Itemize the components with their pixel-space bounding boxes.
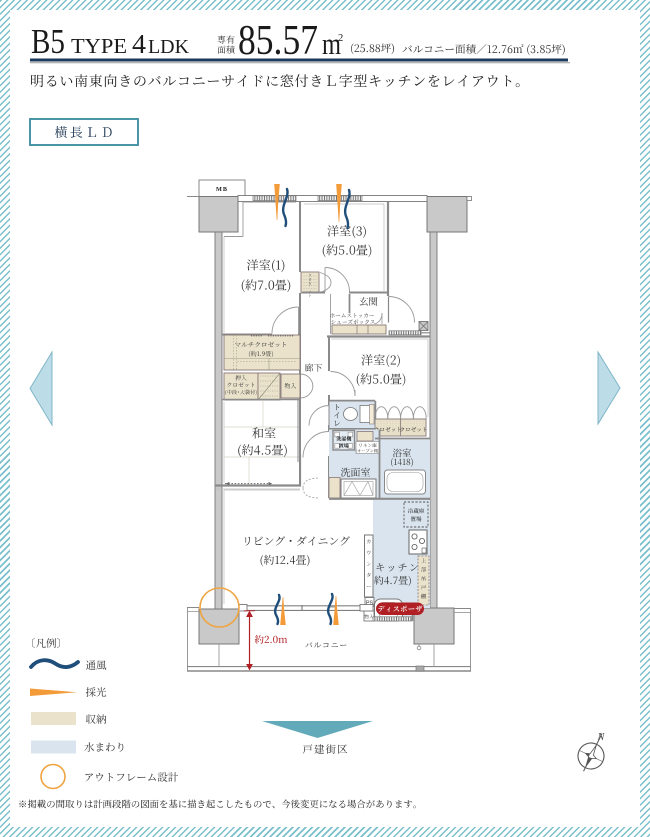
- svg-text:MB: MB: [216, 186, 228, 193]
- svg-text:LDK: LDK: [148, 36, 190, 58]
- svg-text:B5: B5: [31, 22, 65, 61]
- svg-text:85.57: 85.57: [238, 18, 318, 64]
- svg-text:TYPE: TYPE: [71, 34, 127, 58]
- svg-text:2: 2: [338, 33, 343, 44]
- svg-text:N: N: [597, 732, 606, 743]
- svg-text:4: 4: [132, 29, 147, 59]
